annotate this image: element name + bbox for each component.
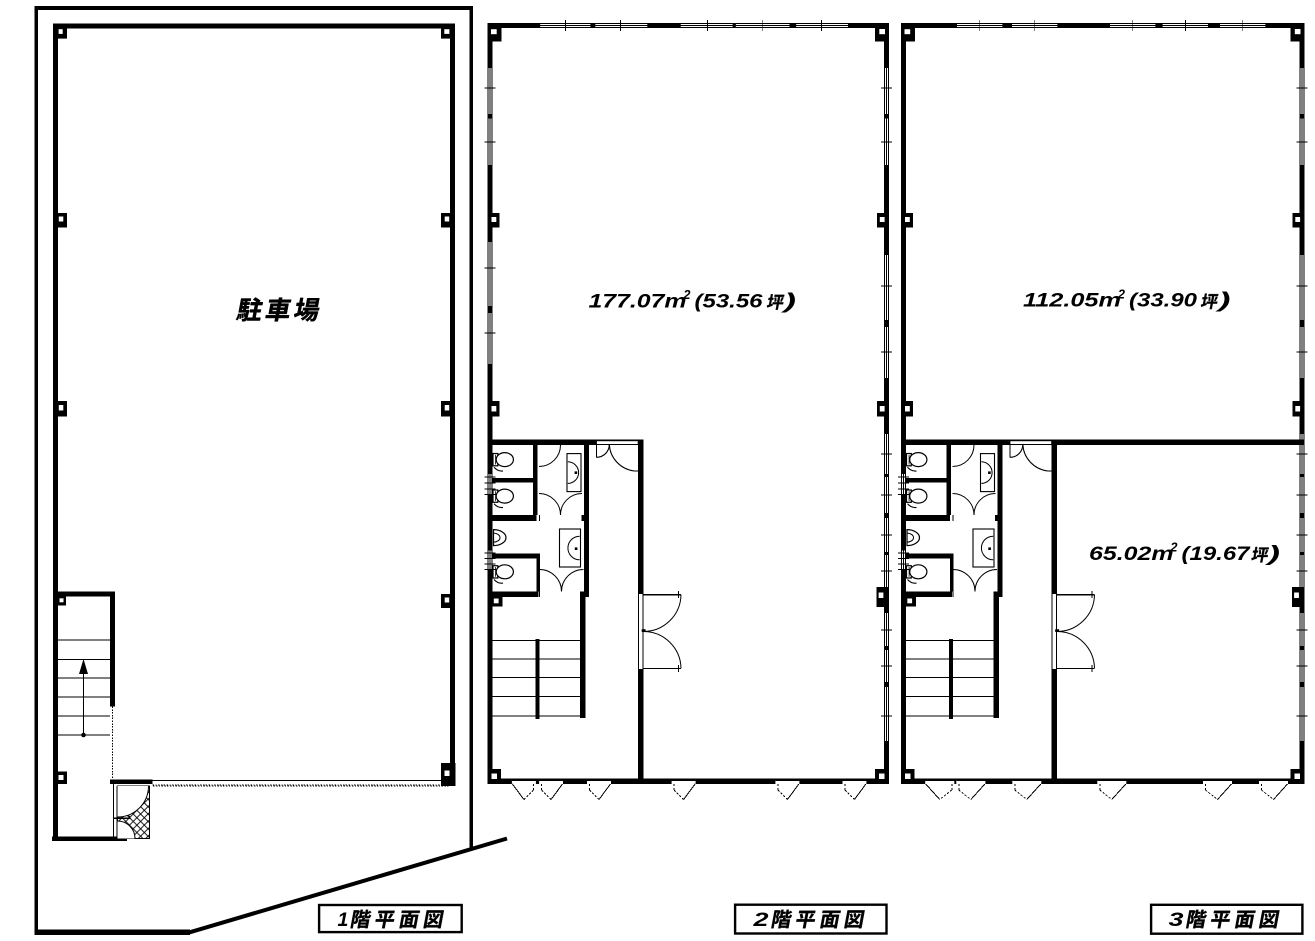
svg-text:2: 2 (1170, 541, 1178, 555)
svg-text:177.07m: 177.07m (589, 290, 687, 312)
svg-text:1: 1 (338, 909, 349, 931)
svg-text:2: 2 (683, 288, 691, 302)
svg-text:3: 3 (1169, 909, 1184, 931)
svg-text:(33.90: (33.90 (1129, 290, 1197, 312)
svg-text:65.02m: 65.02m (1089, 543, 1174, 565)
svg-text:(53.56: (53.56 (695, 290, 764, 312)
svg-text:2: 2 (752, 909, 769, 931)
svg-text:(19.67: (19.67 (1182, 543, 1251, 565)
svg-text:112.05m: 112.05m (1023, 290, 1121, 312)
svg-text:2: 2 (1117, 287, 1125, 301)
